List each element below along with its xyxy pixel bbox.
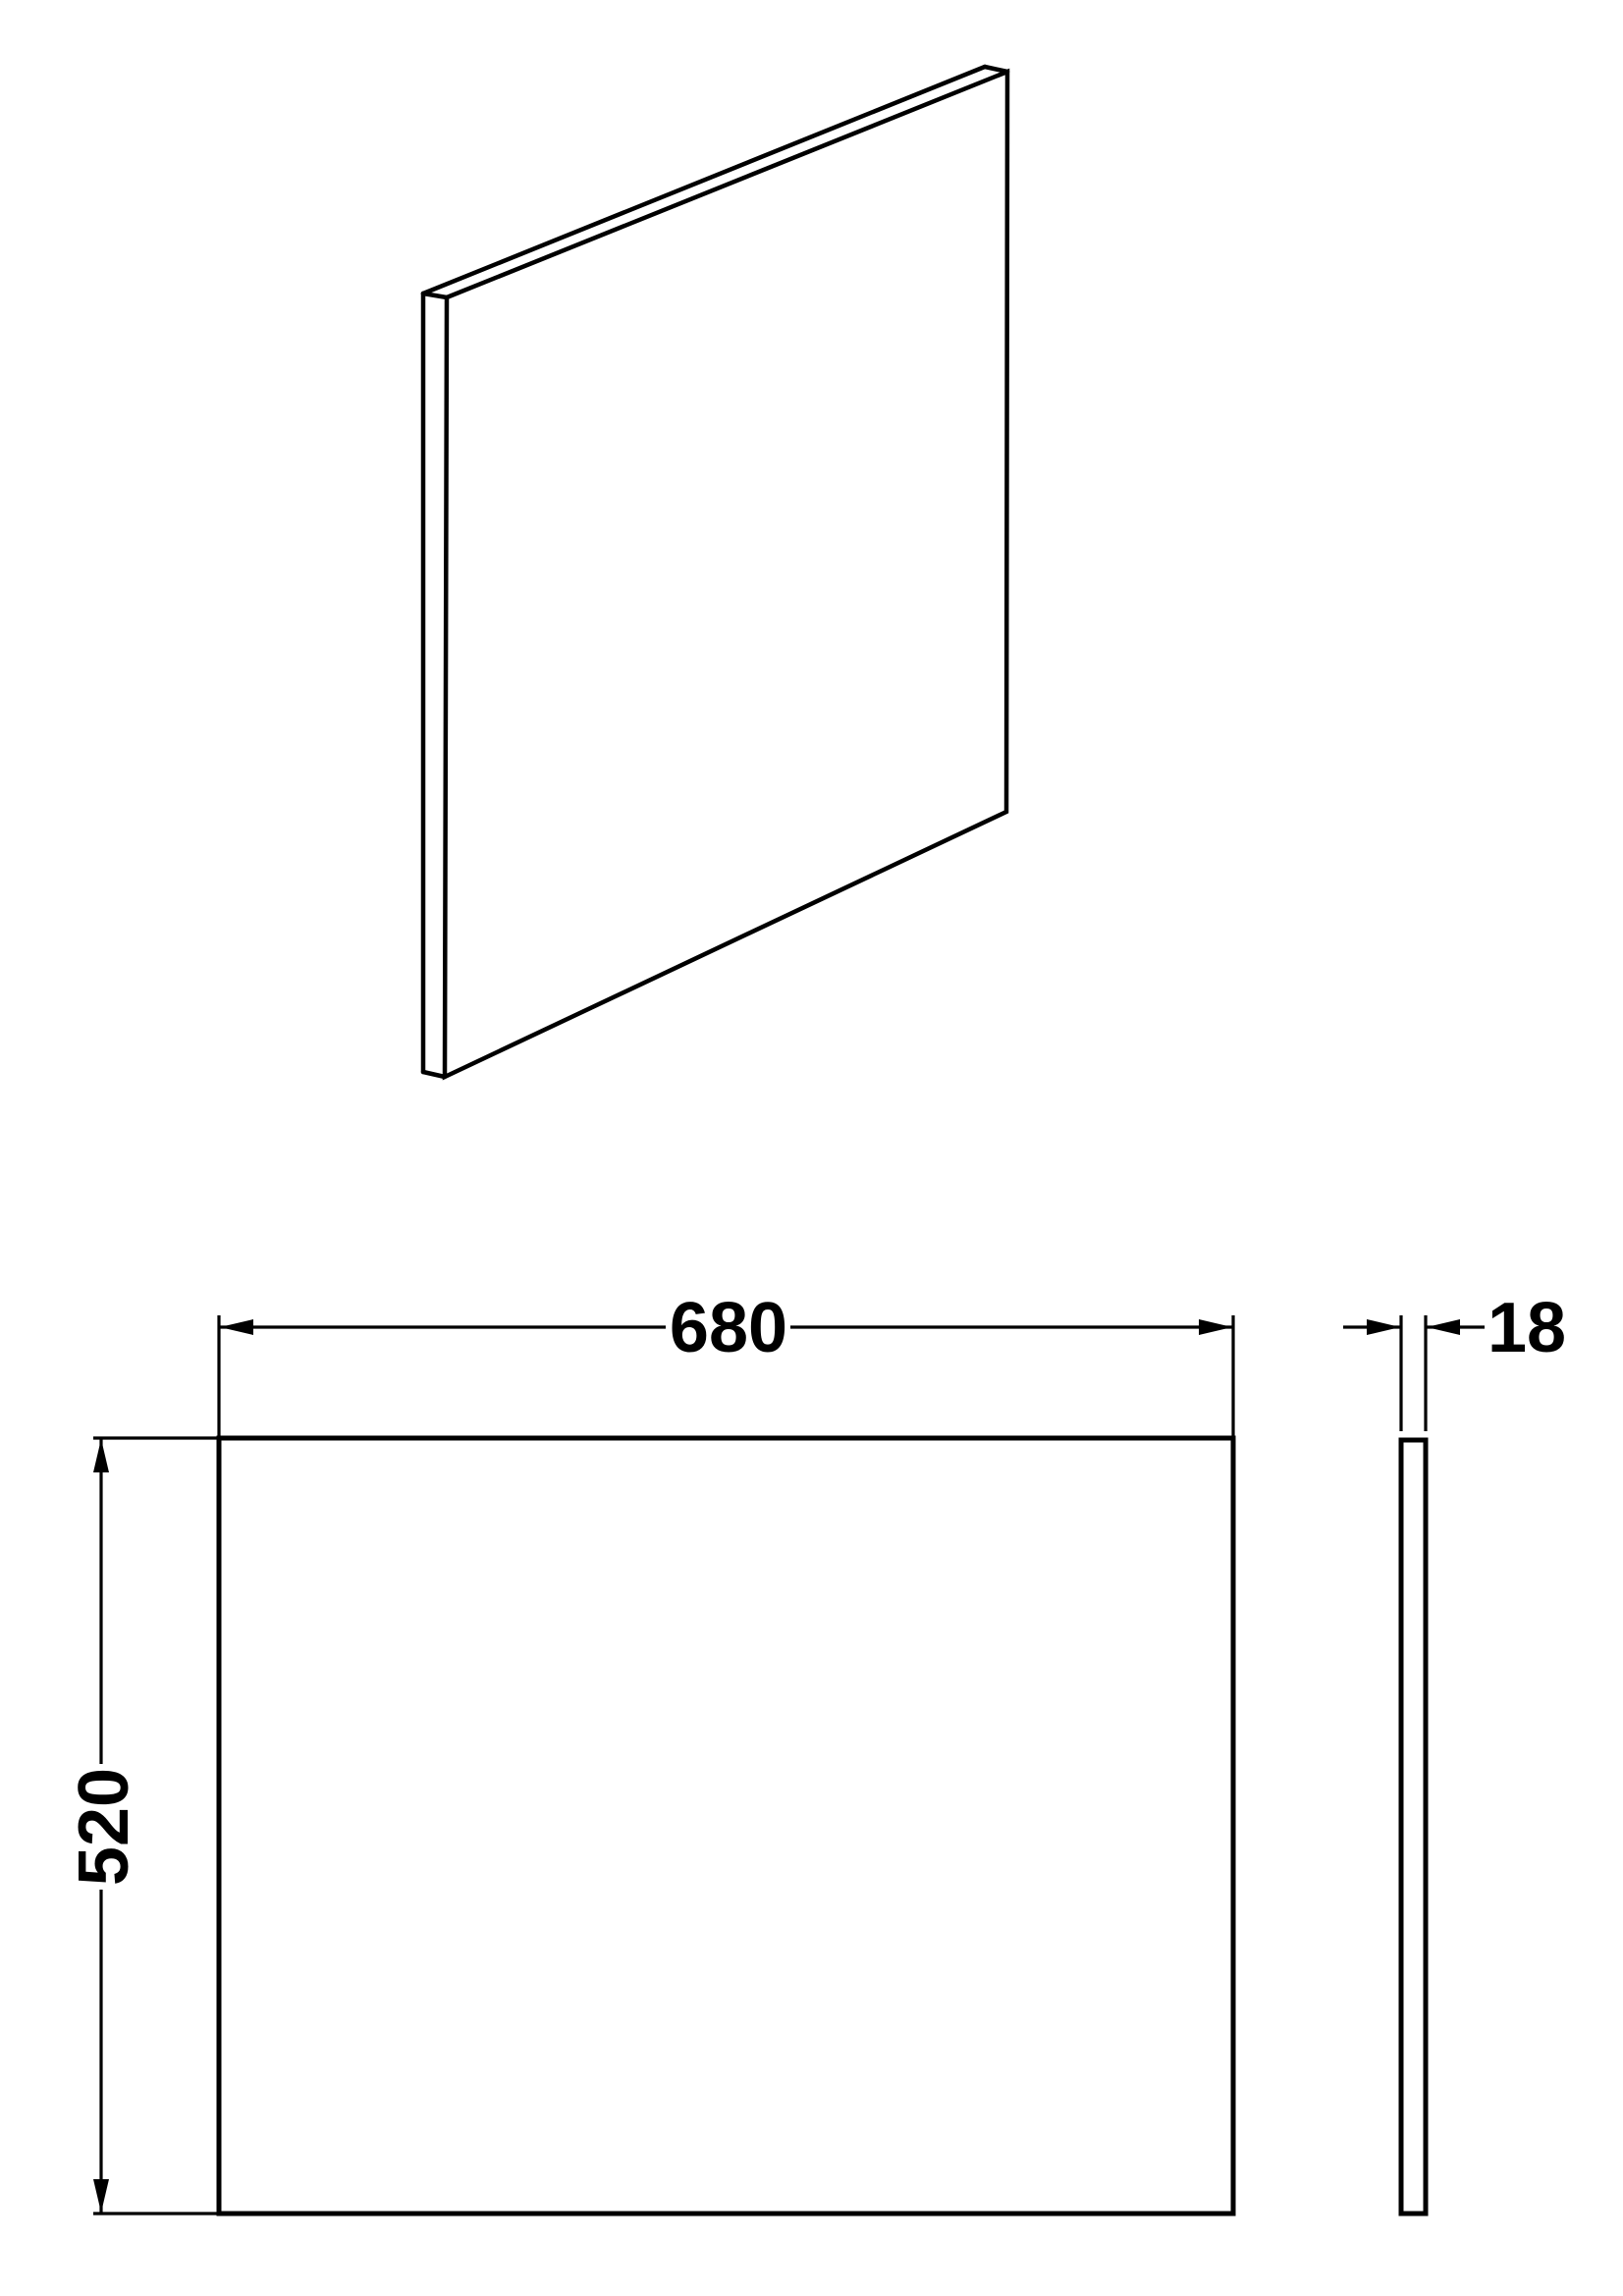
front-view-outline	[219, 1438, 1233, 2214]
thickness-dimension-label: 18	[1488, 1289, 1566, 1367]
drawing-page: 680 520	[0, 0, 1623, 2296]
height-arrowhead-top	[93, 1439, 109, 1472]
panel-top-right-corner-edge	[985, 67, 1007, 72]
technical-drawing-canvas: 680 520	[0, 0, 1623, 2296]
width-arrowhead-left	[220, 1319, 253, 1335]
panel-front-face	[445, 72, 1007, 1077]
height-dimension-label: 520	[65, 1768, 143, 1886]
thickness-arrowhead-right	[1427, 1319, 1460, 1335]
perspective-view	[423, 67, 1007, 1077]
thickness-dimension: 18	[1343, 1289, 1566, 1431]
height-dimension: 520	[65, 1438, 219, 2214]
side-view-outline	[1401, 1440, 1426, 2214]
side-view: 18	[1343, 1289, 1566, 2214]
height-arrowhead-bottom	[93, 2179, 109, 2213]
width-arrowhead-right	[1199, 1319, 1232, 1335]
panel-top-left-corner-edge	[423, 294, 447, 297]
panel-top-thickness-edge	[423, 67, 985, 294]
thickness-arrowhead-left	[1367, 1319, 1400, 1335]
front-view: 680 520	[65, 1289, 1233, 2214]
panel-bottom-left-corner-edge	[423, 1072, 445, 1077]
width-dimension: 680	[219, 1289, 1233, 1438]
width-dimension-label: 680	[670, 1289, 787, 1367]
